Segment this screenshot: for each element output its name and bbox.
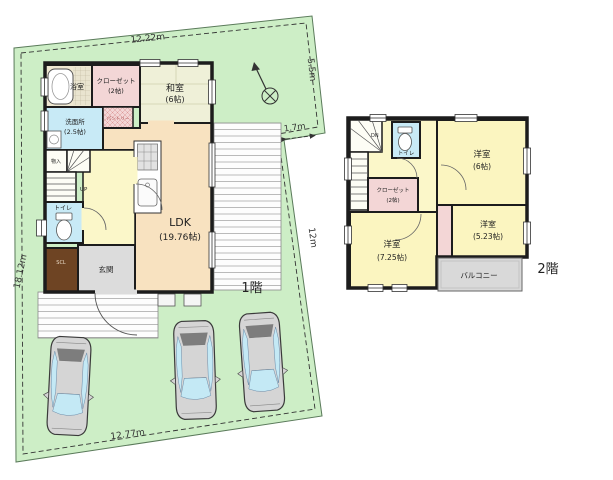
toilet-1f-label: トイレ (54, 205, 72, 212)
room-bedroom-523 (452, 205, 527, 257)
wood-deck (214, 123, 281, 290)
dim-right-lower: 12m (306, 227, 319, 248)
shoe-closet-label: SCL (56, 260, 66, 266)
pantry-label: パントリー (107, 116, 130, 122)
ldk-size: (19.76帖) (159, 231, 201, 243)
washitsu-opening (148, 121, 174, 126)
stairs-run-1f (45, 172, 76, 202)
balcony-label: バルコニー (460, 271, 497, 280)
front-door-opening (95, 290, 137, 295)
step-stone (184, 294, 201, 306)
stairs-up-label: UP (80, 187, 88, 193)
closet-2f-label: クローゼット (376, 186, 409, 194)
washroom-label: 洗面所 (65, 117, 85, 126)
car-2 (168, 320, 221, 420)
bedroom725-label: 洋室 (383, 239, 401, 250)
closet-1f-size: (2帖) (108, 86, 124, 95)
ldk-label: LDK (169, 216, 192, 229)
floor-plan-canvas: 12.22m 5.5m 1.7m 12m 18.12m 12.77m (0, 0, 613, 480)
ldk-door-opening (134, 157, 138, 184)
step-stone (158, 294, 175, 306)
floor2-label: 2階 (537, 262, 558, 277)
washing-machine-icon (47, 131, 61, 148)
toilet-door-opening (82, 208, 86, 230)
bedroom6-size: (6帖) (473, 161, 491, 171)
toilet-icon-1f (56, 213, 72, 240)
closet-strip-2f (437, 205, 452, 257)
room-closet-1f (92, 65, 140, 107)
bath-label: 浴室 (70, 82, 84, 91)
toilet-icon-2f (398, 127, 412, 151)
stairs-down-label: DN (371, 133, 379, 139)
floor1-label: 1階 (241, 281, 262, 296)
toilet-2f-label: トイレ (398, 151, 415, 157)
floor-plan-page: 12.22m 5.5m 1.7m 12m 18.12m 12.77m (0, 0, 613, 480)
entrance-label: 玄関 (99, 264, 114, 274)
closet-2f-size: (2帖) (386, 196, 399, 204)
stove-icon (138, 144, 158, 170)
bedroom6-label: 洋室 (473, 149, 491, 160)
bedroom523-label: 洋室 (480, 219, 496, 229)
hallway-1f (83, 150, 135, 245)
storage-label: 物入 (51, 158, 61, 165)
kitchen-counter (134, 141, 161, 213)
washitsu-size: (6帖) (165, 94, 184, 104)
washitsu-label: 和室 (166, 82, 184, 94)
entrance-porch-steps (38, 292, 158, 338)
washroom-size: (2.5帖) (64, 127, 86, 136)
room-bedroom-725 (350, 212, 437, 288)
bedroom725-size: (7.25帖) (377, 252, 407, 262)
room-shoe-closet (45, 248, 78, 292)
closet-1f-label: クローゼット (97, 76, 136, 85)
bedroom523-size: (5.23帖) (473, 231, 503, 241)
room-closet-2f (368, 178, 418, 212)
